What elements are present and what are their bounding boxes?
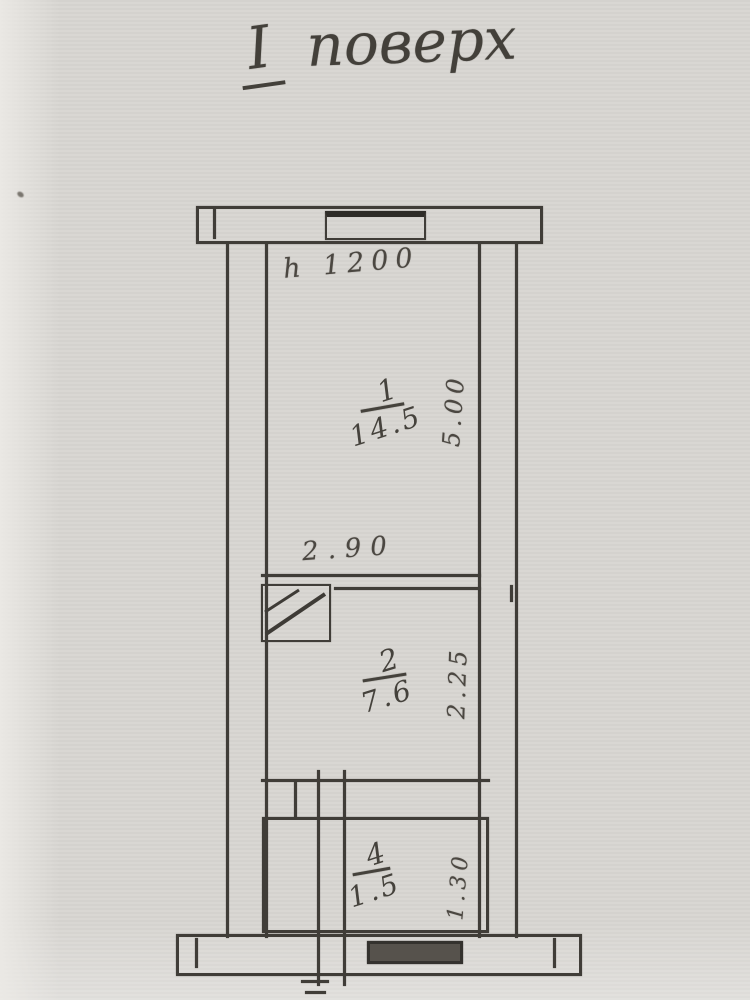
room-1-label: 1 14.5 [341, 372, 426, 449]
room-1-width-dim: 2.90 [301, 531, 397, 567]
floorplan-drawing: h 1200 1 14.5 5.00 2.90 2 [0, 0, 750, 1000]
bottom-parapet-right-notch [553, 938, 556, 968]
door-opening-box [261, 584, 331, 642]
room-2-depth-dim: 2.25 [442, 619, 473, 720]
door-hatch-lines [263, 586, 329, 640]
equals-mark-bottom [305, 991, 326, 994]
top-parapet-window [325, 211, 426, 240]
room-4-label: 4 1.5 [340, 838, 404, 911]
passage-line [294, 782, 297, 818]
room2-top-wall [334, 587, 481, 590]
bottom-parapet-left-notch [195, 938, 198, 968]
left-wall-outer [226, 243, 229, 938]
scanned-floorplan-page: Iповерх h 1200 1 14.5 5.00 2.90 [0, 0, 750, 1000]
room-1-depth-dim: 5.00 [437, 336, 473, 448]
room-2-label: 2 7.6 [353, 644, 416, 717]
parapet-height-note: h 1200 [282, 242, 421, 285]
right-wall-outer [515, 243, 518, 938]
room1-room2-wall [261, 574, 481, 577]
top-parapet-left-notch [213, 209, 216, 239]
right-wall-tick [510, 585, 513, 602]
equals-mark-top [301, 980, 329, 983]
bottom-parapet-window [367, 941, 463, 964]
room-2-number: 2 [359, 640, 418, 681]
